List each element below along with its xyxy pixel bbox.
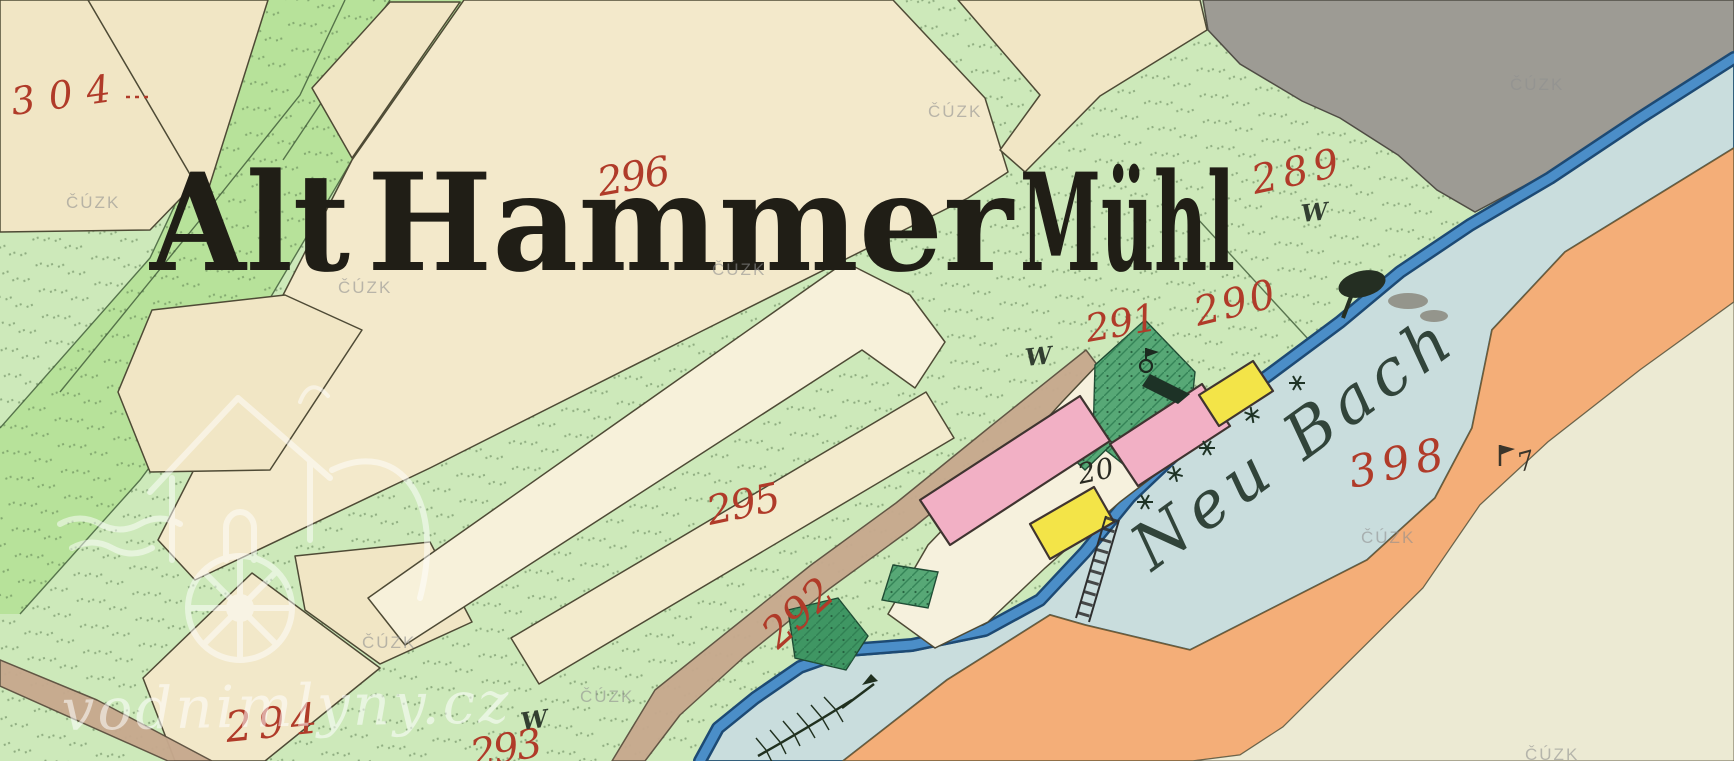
cuzk-watermark: ČÚZK — [1525, 745, 1579, 761]
cuzk-watermark: ČÚZK — [1361, 528, 1415, 547]
site-watermark: vodnimlyny.cz — [61, 668, 512, 744]
cuzk-watermark: ČÚZK — [338, 278, 392, 297]
cadastral-map-viewer: 7 Alt Hammer Mühl Neu Bach 304 296 289 2… — [0, 0, 1734, 761]
settlement-title: Alt Hammer Mühl — [148, 143, 1235, 302]
cuzk-watermark: ČÚZK — [362, 633, 416, 652]
map-image: 7 Alt Hammer Mühl Neu Bach 304 296 289 2… — [0, 0, 1734, 761]
cuzk-watermark: ČÚZK — [1510, 75, 1564, 94]
meadow-mark-291: W — [1024, 340, 1056, 372]
cuzk-watermark: ČÚZK — [66, 193, 120, 212]
meadow-mark-289: W — [1300, 196, 1332, 228]
title-word-alt: Alt — [148, 143, 350, 302]
cuzk-watermark: ČÚZK — [580, 687, 634, 706]
title-word-hammer: Hammer — [367, 143, 1015, 302]
cuzk-watermark: ČÚZK — [928, 102, 982, 121]
title-word-muehl: Mühl — [1020, 143, 1235, 302]
cuzk-watermark: ČÚZK — [712, 260, 766, 279]
